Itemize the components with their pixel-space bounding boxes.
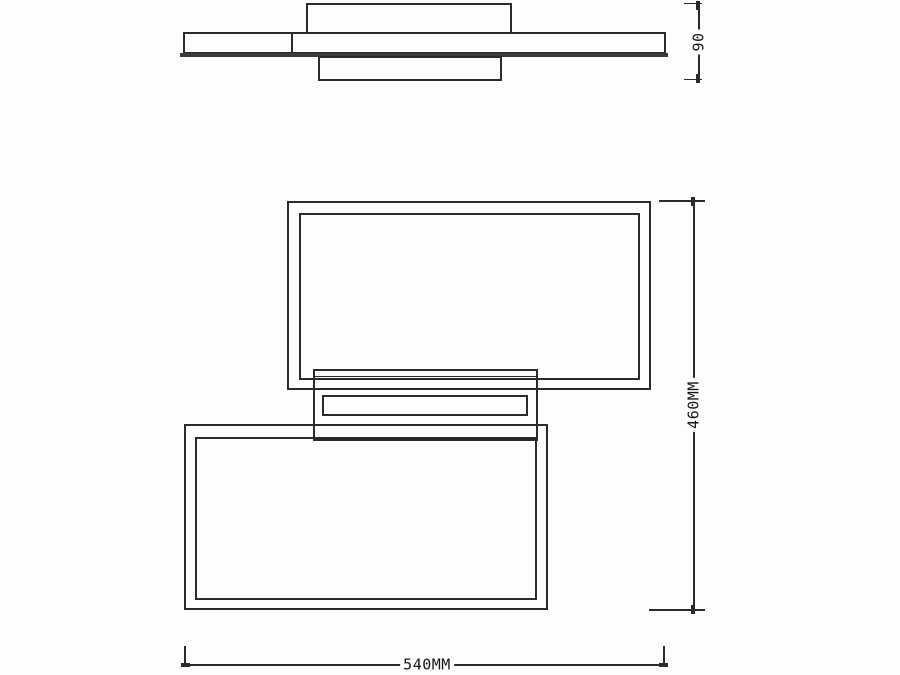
- side-view-canopy-box: [306, 3, 512, 34]
- side-view-fixture-bar: [183, 32, 666, 54]
- dim-460-extension-bottom: [649, 609, 705, 611]
- dim-90-tick-top: [696, 1, 700, 10]
- dim-540-label: 540MM: [400, 657, 454, 674]
- dim-460-label: 460MM: [686, 378, 703, 432]
- technical-drawing-canvas: 90 460MM 540MM: [0, 0, 900, 675]
- dim-460-extension-top: [659, 200, 705, 202]
- side-view-bar-seam-line: [291, 33, 293, 53]
- dim-540-tick-right: [659, 663, 668, 667]
- front-view-upper-frame-inner: [299, 213, 640, 380]
- dim-540-tick-left: [181, 663, 190, 667]
- side-view-driver-box: [318, 56, 502, 81]
- front-view-lower-frame-inner: [195, 437, 537, 600]
- front-view-connector-inner-frame: [322, 395, 528, 416]
- dim-460-tick-top: [691, 197, 695, 206]
- dim-90-tick-bottom: [696, 74, 700, 83]
- dim-90-label: 90: [691, 29, 708, 54]
- dim-460-tick-bottom: [691, 605, 695, 614]
